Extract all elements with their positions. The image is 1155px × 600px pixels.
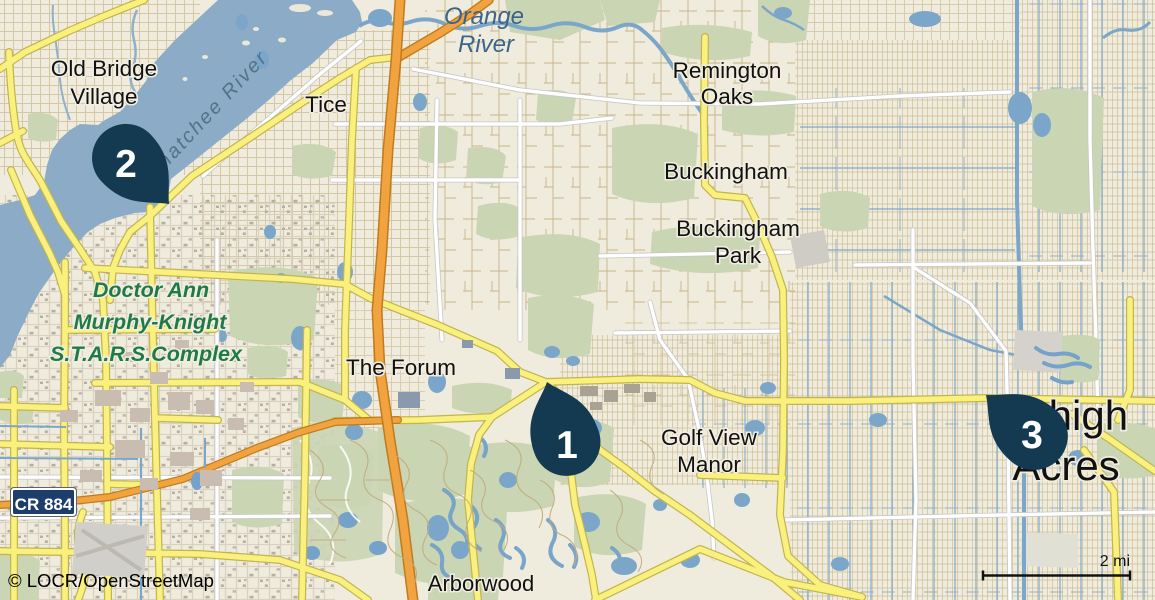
svg-text:3: 3 bbox=[1021, 414, 1043, 457]
svg-text:Manor: Manor bbox=[677, 452, 741, 477]
svg-text:2: 2 bbox=[115, 143, 137, 186]
svg-text:Arborwood: Arborwood bbox=[428, 571, 534, 596]
svg-text:River: River bbox=[458, 31, 515, 58]
svg-text:S.T.A.R.S.Complex: S.T.A.R.S.Complex bbox=[50, 342, 243, 366]
svg-text:Murphy-Knight: Murphy-Knight bbox=[74, 310, 228, 334]
svg-text:Old Bridge: Old Bridge bbox=[51, 56, 157, 81]
svg-text:Remington: Remington bbox=[673, 58, 782, 83]
svg-text:Park: Park bbox=[715, 243, 762, 268]
svg-text:Oaks: Oaks bbox=[701, 84, 754, 109]
svg-text:1: 1 bbox=[556, 424, 578, 467]
svg-text:CR 884: CR 884 bbox=[15, 495, 73, 514]
svg-text:Buckingham: Buckingham bbox=[676, 216, 800, 241]
svg-text:Village: Village bbox=[70, 84, 137, 109]
svg-text:2 mi: 2 mi bbox=[1100, 553, 1130, 570]
svg-text:The Forum: The Forum bbox=[346, 355, 456, 380]
svg-text:Buckingham: Buckingham bbox=[664, 159, 788, 184]
svg-text:Orange: Orange bbox=[444, 3, 524, 30]
svg-text:Tice: Tice bbox=[305, 92, 347, 117]
svg-text:Doctor Ann: Doctor Ann bbox=[93, 278, 209, 302]
svg-text:© LOCR/OpenStreetMap: © LOCR/OpenStreetMap bbox=[8, 570, 214, 591]
svg-text:Golf View: Golf View bbox=[661, 425, 758, 450]
